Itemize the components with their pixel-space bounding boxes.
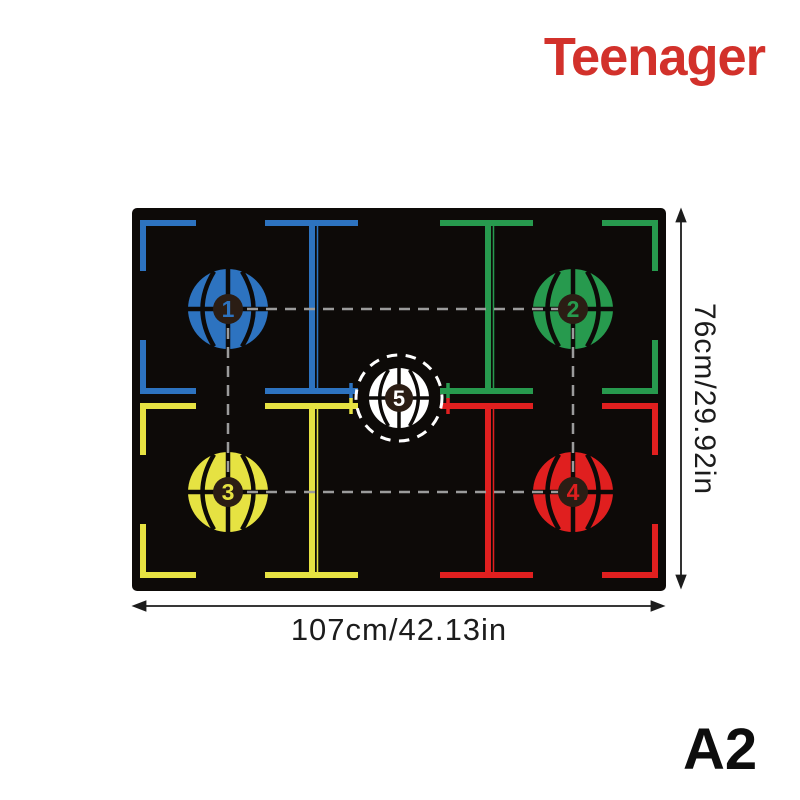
ball-number: 5 (393, 386, 405, 411)
mat-graphic: 1 2 3 4 5 (132, 208, 666, 591)
basketball-2-badge: 2 (558, 294, 588, 324)
width-dimension-label: 107cm/42.13in (132, 612, 666, 648)
ball-number: 3 (222, 479, 235, 505)
ball-number: 4 (567, 479, 580, 505)
training-mat: 1 2 3 4 5 (132, 208, 666, 591)
basketball-5-badge: 5 (385, 384, 413, 412)
ball-number: 1 (222, 296, 235, 322)
width-arrowhead-left (134, 602, 146, 611)
basketball-1-badge: 1 (213, 294, 243, 324)
basketball-3-badge: 3 (213, 477, 243, 507)
ball-number: 2 (567, 296, 580, 322)
height-arrowhead-top (677, 210, 686, 222)
width-arrowhead-right (652, 602, 664, 611)
height-dimension-label: 76cm/29.92in (687, 208, 721, 591)
size-code-label: A2 (683, 716, 757, 783)
basketball-4-badge: 4 (558, 477, 588, 507)
product-image: Teenager (0, 0, 800, 800)
height-arrowhead-bottom (677, 576, 686, 588)
brand-title: Teenager (544, 26, 765, 88)
